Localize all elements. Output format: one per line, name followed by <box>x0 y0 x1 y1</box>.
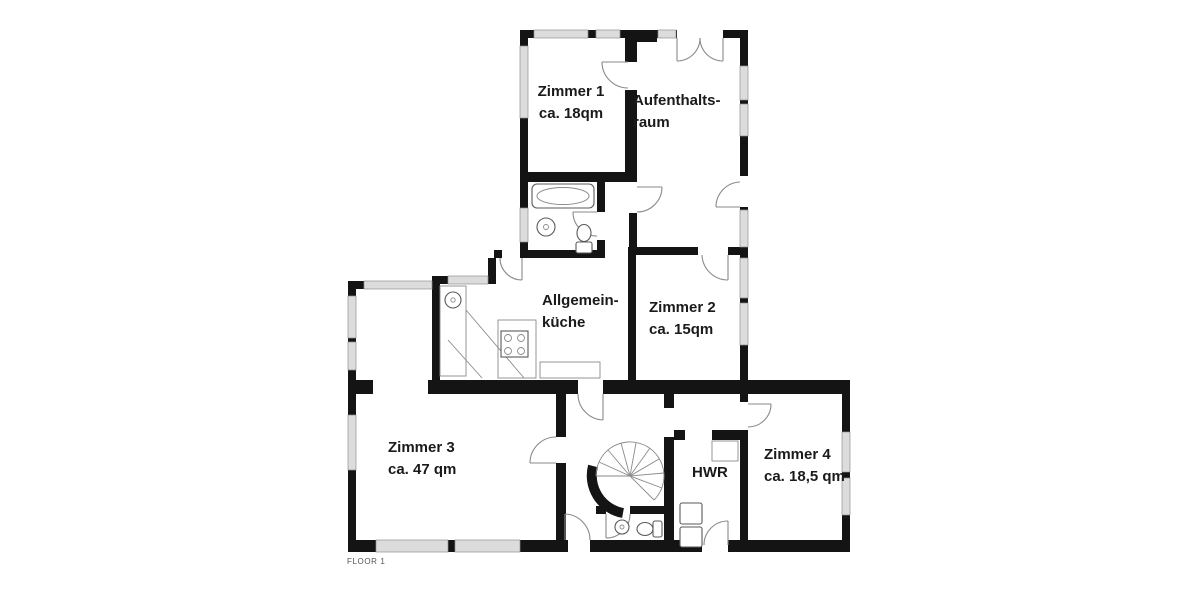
bath-sink <box>537 218 555 236</box>
wall <box>625 30 657 42</box>
window <box>364 281 432 289</box>
door-arc <box>530 437 556 463</box>
door-arc <box>578 394 603 420</box>
window <box>534 30 588 38</box>
wall <box>520 172 633 182</box>
wall <box>625 42 637 62</box>
wall <box>628 255 636 380</box>
room-label-kueche: Allgemein- <box>542 292 619 309</box>
wc-toilet-bowl <box>637 523 653 536</box>
wall <box>664 437 674 552</box>
floor-label: FLOOR 1 <box>347 557 385 566</box>
door-arc <box>500 258 522 280</box>
wall <box>494 250 502 258</box>
washing-machine <box>680 527 702 547</box>
room-label-hwr: HWR <box>692 464 728 481</box>
counter-diagonal <box>448 340 482 378</box>
kitchen-sink <box>445 292 461 308</box>
stair-tread <box>630 476 654 500</box>
wall <box>560 540 565 552</box>
toilet-bowl <box>577 225 591 242</box>
wall <box>603 380 850 394</box>
window <box>348 296 356 338</box>
window <box>455 540 520 552</box>
kitchen-counter-bottom <box>540 362 600 378</box>
wall <box>428 380 578 394</box>
stair-outline <box>596 442 664 500</box>
floor-plan-canvas: Zimmer 1 ca. 18qm Aufenthalts- raum Zimm… <box>0 0 1200 600</box>
wall <box>740 430 748 552</box>
door-arc <box>748 404 771 427</box>
window <box>740 258 748 298</box>
room-label-zimmer2: Zimmer 2 <box>649 299 716 316</box>
wall <box>629 213 637 247</box>
door-arc <box>677 38 700 61</box>
room-label-zimmer3: Zimmer 3 <box>388 439 455 456</box>
window <box>376 540 448 552</box>
window <box>842 432 850 472</box>
stair-tread <box>630 476 662 488</box>
window <box>348 342 356 370</box>
room-area-zimmer2: ca. 15qm <box>649 321 713 338</box>
window <box>740 104 748 136</box>
wc-toilet-tank <box>653 521 662 537</box>
window <box>740 66 748 100</box>
spiral-staircase <box>596 442 664 500</box>
wall <box>740 394 748 402</box>
room-area-zimmer3: ca. 47 qm <box>388 461 456 478</box>
window <box>348 415 356 470</box>
room-label-zimmer1: Zimmer 1 <box>538 83 605 100</box>
door-arc <box>602 62 628 88</box>
wall <box>712 430 740 440</box>
wall <box>488 276 496 284</box>
window <box>596 30 620 38</box>
room-area-zimmer1: ca. 18qm <box>539 105 603 122</box>
room-label-kueche-2: küche <box>542 314 585 331</box>
wall <box>674 430 685 440</box>
room-label-zimmer4: Zimmer 4 <box>764 446 831 463</box>
toilet-tank <box>576 242 592 253</box>
wall <box>432 281 440 392</box>
door-arc <box>637 187 662 212</box>
door-arc <box>565 514 590 540</box>
wall <box>630 506 664 514</box>
window <box>448 276 488 284</box>
floor-plan-svg: Zimmer 1 ca. 18qm Aufenthalts- raum Zimm… <box>0 0 1200 600</box>
fixtures-layer <box>440 184 738 547</box>
washing-machine <box>680 503 702 524</box>
window <box>740 303 748 345</box>
stair-tread <box>599 462 630 476</box>
wall <box>597 182 605 212</box>
window <box>520 208 528 242</box>
wall <box>348 380 373 394</box>
room-label-aufenthaltsraum-2: raum <box>633 114 670 131</box>
closet <box>712 441 738 461</box>
door-arc <box>716 182 740 207</box>
wall <box>728 247 748 255</box>
room-area-zimmer4: ca. 18,5 qm <box>764 468 845 485</box>
door-opening <box>740 176 748 207</box>
wc-sink <box>615 520 629 534</box>
window <box>658 30 676 38</box>
window <box>520 46 528 118</box>
room-label-aufenthaltsraum: Aufenthalts- <box>633 92 721 109</box>
door-arc <box>704 521 728 545</box>
wall <box>556 394 566 437</box>
door-arc <box>700 38 723 61</box>
wall <box>664 394 674 408</box>
window <box>740 210 748 247</box>
wall <box>628 247 698 255</box>
door-arc <box>702 255 728 280</box>
